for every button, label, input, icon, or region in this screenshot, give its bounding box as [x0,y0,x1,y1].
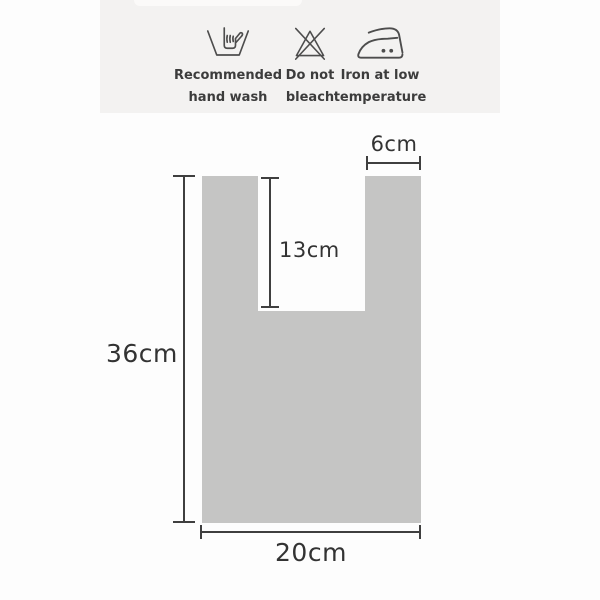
dimension-line-handle-depth [269,178,271,308]
dimension-tick [173,175,195,177]
care-instructions-panel: Recommended hand wash Do not bleach [100,0,500,113]
care-label-line: hand wash [189,90,268,106]
dimension-value-handle-depth: 13cm [279,238,340,262]
dimension-line-bottom-width [201,531,421,533]
iron-low-temp-icon [352,20,408,62]
dimension-value-bottom-width: 20cm [256,538,366,567]
dimension-tick [261,177,279,179]
hand-wash-icon [204,20,252,62]
dimension-value-total-height: 36cm [106,339,178,368]
do-not-bleach-icon [290,20,330,62]
dimension-line-total-height [183,176,185,523]
dimension-tick [419,525,421,539]
care-item-iron-low: Iron at low temperature [325,20,435,106]
dimension-tick [366,156,368,170]
care-label-line: Iron at low [341,68,420,84]
product-spec-image: Recommended hand wash Do not bleach [0,0,600,600]
care-label-line: Recommended [174,68,282,84]
care-item-hand-wash: Recommended hand wash [173,20,283,106]
care-label-line: temperature [334,90,427,106]
dimension-tick [419,156,421,170]
dimension-tick [261,306,279,308]
bag-shape [202,176,421,523]
dimension-value-strap-width: 6cm [360,132,428,156]
dimension-line-strap-width [367,162,421,164]
dimension-tick [200,525,202,539]
dimension-tick [173,521,195,523]
cropped-label-remnant [134,0,302,6]
